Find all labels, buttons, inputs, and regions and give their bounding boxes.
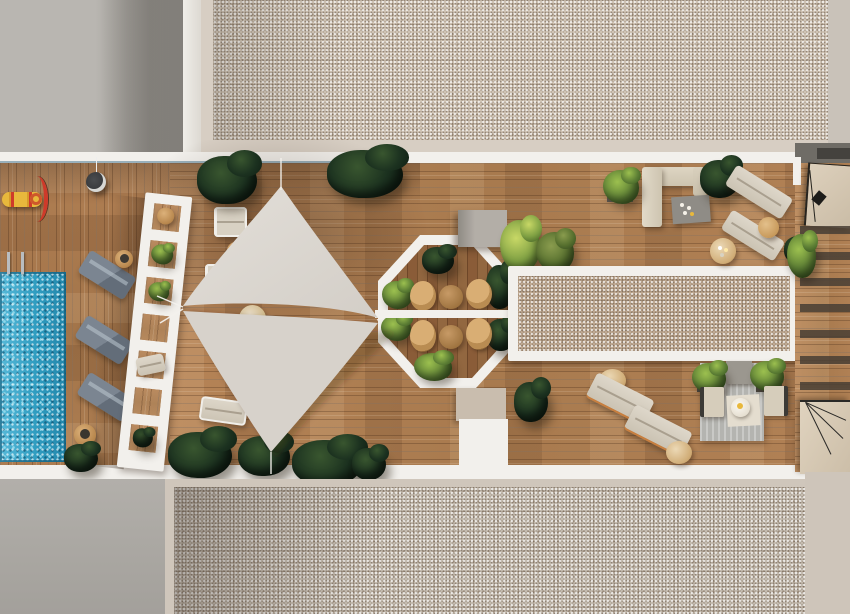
hanging-chair [86, 172, 106, 192]
pergola-opening-6 [132, 387, 162, 416]
lounge-bench [726, 361, 752, 384]
planter-sw-corner [64, 444, 98, 472]
lower-right-ledge [805, 472, 850, 614]
pool-ladder-rail-left [7, 252, 10, 274]
rug-armchair-right [764, 386, 788, 416]
hedge-bottom-4 [352, 448, 386, 480]
hanging-chair-cable [96, 157, 97, 173]
right-white-sliver-top [793, 157, 801, 185]
octagon-chair-ne [466, 279, 492, 309]
octagon-south-path [459, 419, 508, 470]
deck-lounger-top-2 [205, 264, 235, 290]
hedge-top-2 [327, 150, 403, 198]
upper-left-wall-shadow [100, 0, 183, 152]
hedge-bottom-1 [168, 432, 232, 478]
octagon-chair-nw [410, 281, 436, 311]
br-table-2 [666, 441, 692, 464]
upper-roof-gravel-shade [213, 0, 343, 140]
stair-plant [787, 234, 816, 278]
octagon-table-north [439, 285, 463, 309]
octagon-chair-se [466, 318, 492, 350]
upper-divider-wall [183, 0, 201, 152]
right-side-table [758, 217, 779, 238]
lower-left-wall [0, 479, 170, 614]
octagon-bush-bottom [414, 353, 452, 381]
swimming-pool [0, 272, 66, 462]
lower-roof-gravel-shade [174, 487, 504, 614]
rug-table-food [737, 403, 743, 409]
plant-mid-bottom [514, 382, 548, 422]
hedge-top-1 [197, 156, 257, 204]
drinks-table-glasses [718, 246, 722, 250]
sail-tension-bar [375, 310, 512, 318]
drinks-table [710, 238, 736, 264]
sail-gap-table [239, 305, 266, 332]
stair-landing-top [804, 162, 850, 228]
skylight-planter-gravel [518, 276, 790, 351]
rooftop-terrace-render [0, 0, 850, 614]
deck-lounger-top-1 [214, 207, 247, 237]
pergola-opening-4 [140, 314, 170, 343]
deck-round-table-sw-tray [80, 429, 90, 439]
corner-sofa-left [642, 167, 662, 227]
coffee-table-candles [680, 203, 684, 207]
palm-cluster-bright [500, 220, 540, 272]
octagon-table-south [439, 325, 463, 349]
pool-side-table-tray [120, 254, 129, 263]
upper-right-ledge [828, 0, 850, 152]
sofa-coffee-table [671, 195, 711, 225]
octagon-bush-left-1 [382, 281, 412, 309]
octagon-bush-left-2 [381, 315, 411, 341]
sofa-plant-light [603, 170, 639, 204]
hedge-bottom-2 [238, 436, 290, 476]
octagon-chair-sw [410, 320, 436, 352]
right-top-beam [817, 148, 850, 159]
spring-toy-hub [30, 193, 42, 205]
octagon-bush-top [422, 247, 454, 274]
rug-armchair-left [700, 387, 724, 417]
pool-ladder-rail-right [21, 252, 24, 274]
octagon-south-block [456, 388, 506, 421]
deck-table-top [227, 242, 244, 259]
